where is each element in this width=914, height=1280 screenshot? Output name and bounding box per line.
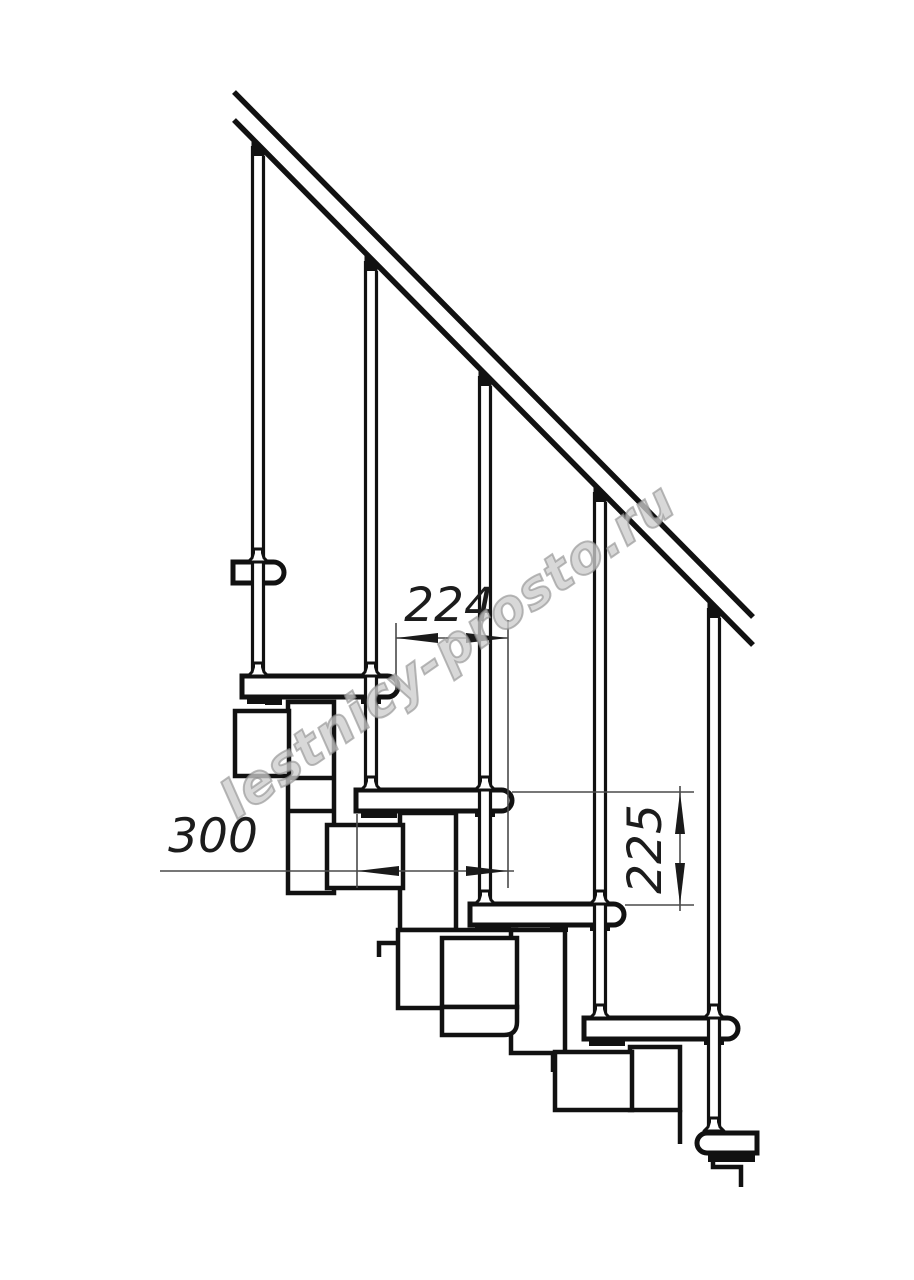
handrail-bottom-edge xyxy=(234,120,753,645)
drawing-canvas: 224 300 225 xyxy=(0,0,914,1280)
baluster-2 xyxy=(361,252,381,790)
module-box-4-lip xyxy=(442,1007,517,1035)
module-box-2 xyxy=(235,711,289,776)
baluster-5 xyxy=(704,599,724,1131)
base-clamp xyxy=(708,1153,755,1162)
tread-6 xyxy=(697,1133,757,1153)
module-column-5 xyxy=(630,1047,680,1110)
dimension-label-going: 224 xyxy=(404,578,494,633)
module-box-3 xyxy=(327,825,403,888)
arrowhead-up-icon xyxy=(675,792,685,834)
staircase-drawing: 224 300 225 xyxy=(0,0,914,1280)
floor-step-line xyxy=(713,1162,741,1187)
baluster-1 xyxy=(248,137,268,676)
module-box-4 xyxy=(442,938,517,1007)
dimension-label-rise: 225 xyxy=(618,804,673,894)
arrowhead-down-icon xyxy=(675,863,685,905)
handrail-top-edge xyxy=(234,92,753,617)
module-box-5 xyxy=(555,1052,632,1110)
handrail xyxy=(234,92,753,645)
arrowhead-left-icon xyxy=(396,633,438,643)
baluster-4 xyxy=(590,483,610,1018)
dimension-label-depth: 300 xyxy=(168,809,258,864)
